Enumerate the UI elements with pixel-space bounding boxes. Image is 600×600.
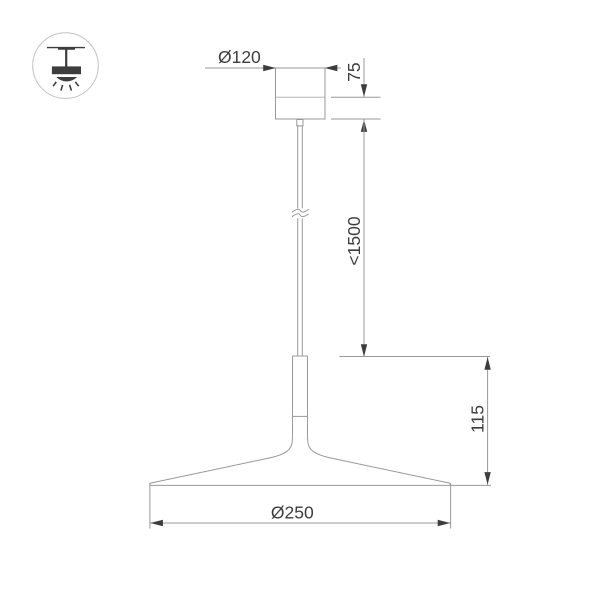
svg-text:75: 75	[344, 62, 364, 81]
svg-text:<1500: <1500	[344, 216, 364, 265]
svg-text:Ø120: Ø120	[218, 47, 261, 67]
svg-text:115: 115	[468, 405, 488, 433]
svg-text:Ø250: Ø250	[271, 502, 314, 522]
